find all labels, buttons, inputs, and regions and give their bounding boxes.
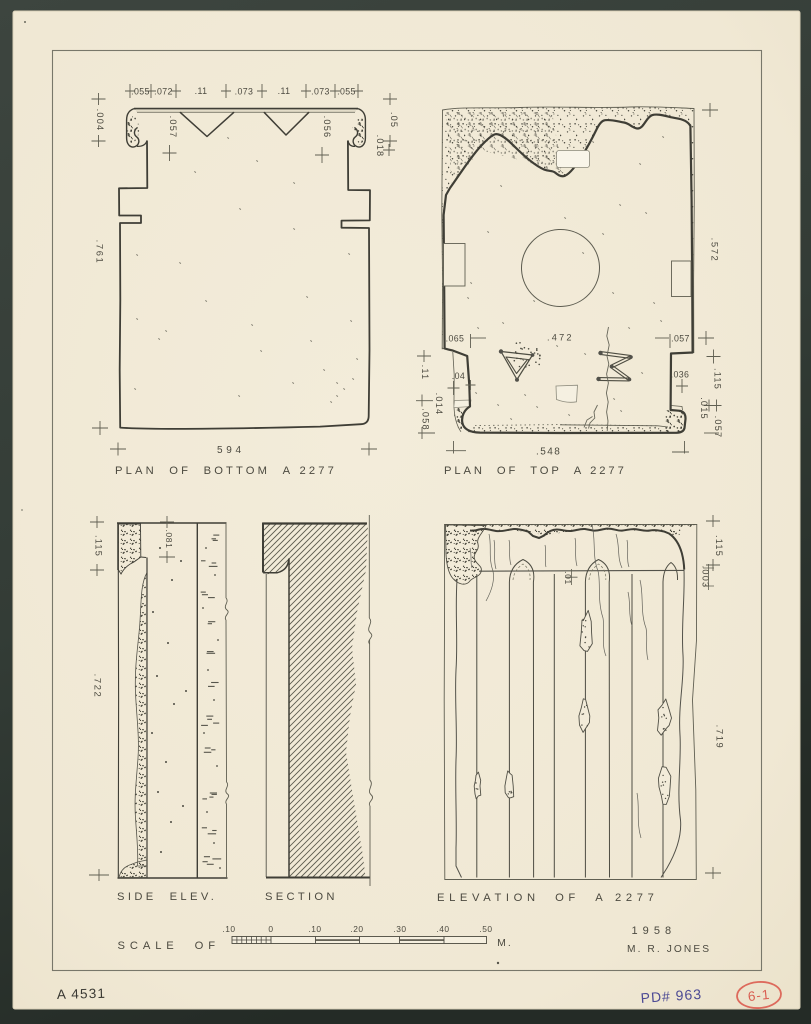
svg-text:.10: .10 [222,924,235,934]
svg-text:.018: .018 [375,135,385,158]
svg-text:.10: .10 [308,924,321,934]
svg-text:.073: .073 [235,87,254,97]
svg-text:.057: .057 [713,416,723,439]
svg-text:.04: .04 [452,371,465,381]
svg-text:.572: .572 [710,238,721,263]
svg-text:M. R. JONES: M. R. JONES [627,944,711,955]
svg-text:.036: .036 [671,370,690,380]
svg-text:.015: .015 [699,397,709,420]
svg-text:.056: .056 [322,116,332,139]
svg-text:PLAN OF BOTTOM A 2277: PLAN OF BOTTOM A 2277 [115,465,337,477]
svg-text:.004: .004 [95,109,105,132]
svg-text:SCALE OF: SCALE OF [118,940,219,952]
svg-text:A 4531: A 4531 [57,986,107,1002]
svg-text:.50: .50 [479,924,492,934]
svg-text:.548: .548 [536,447,562,458]
svg-text:.05: .05 [389,112,399,128]
svg-text:.003: .003 [701,566,711,589]
svg-text:ELEVATION OF A 2277: ELEVATION OF A 2277 [437,892,657,904]
svg-text:.055: .055 [337,87,356,97]
svg-text:6-1: 6-1 [747,987,771,1004]
svg-text:.115: .115 [713,368,723,390]
svg-text:.065: .065 [446,334,465,344]
svg-text:.115: .115 [714,535,724,557]
svg-text:.014: .014 [434,393,444,416]
svg-text:.722: .722 [93,674,104,699]
svg-text:0: 0 [268,924,273,934]
svg-text:594: 594 [217,445,244,456]
svg-text:1958: 1958 [632,925,675,937]
svg-text:.072: .072 [154,87,173,97]
svg-text:PLAN OF TOP A 2277: PLAN OF TOP A 2277 [444,465,627,477]
svg-text:.073: .073 [311,87,330,97]
svg-text:.472: .472 [547,333,573,343]
svg-text:.057: .057 [168,116,178,139]
svg-text:.11: .11 [420,365,430,381]
svg-text:.40: .40 [436,924,449,934]
svg-text:SIDE ELEV.: SIDE ELEV. [117,891,217,903]
svg-text:.057: .057 [671,334,690,344]
svg-text:.30: .30 [393,924,406,934]
svg-text:.081: .081 [164,529,174,548]
svg-text:.719: .719 [715,725,726,750]
svg-text:.11: .11 [278,86,291,96]
svg-text:SECTION: SECTION [265,891,339,903]
svg-text:.055: .055 [131,87,150,97]
svg-text:.115: .115 [94,535,104,557]
svg-text:.11: .11 [195,86,208,96]
svg-text:.761: .761 [95,240,106,265]
svg-text:M.: M. [497,937,513,949]
svg-text:.20: .20 [350,924,363,934]
